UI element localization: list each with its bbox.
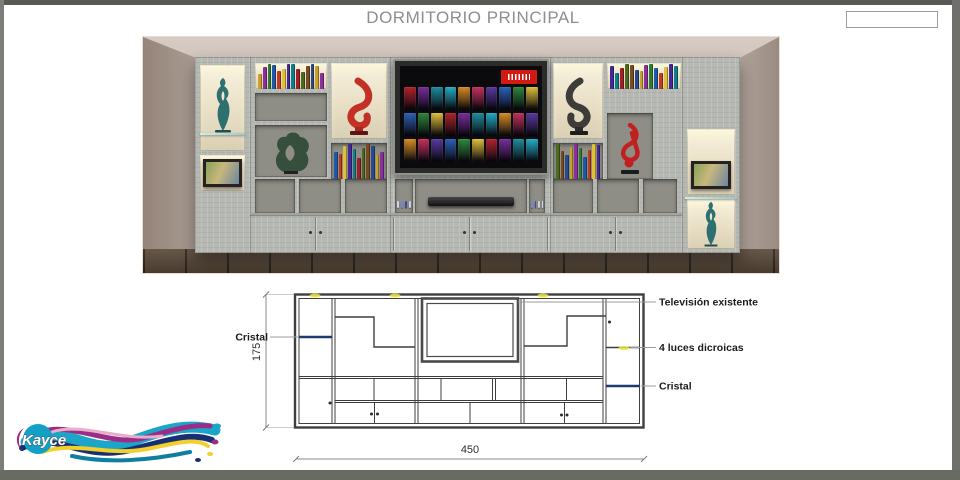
frame-left	[0, 0, 4, 480]
cubby	[597, 179, 639, 213]
glass-shelf	[200, 133, 245, 135]
room-wall-left	[143, 37, 197, 273]
lit-niche-right-bottom	[687, 199, 735, 249]
media-shelf	[415, 179, 527, 213]
door-seam	[393, 217, 394, 251]
cubby	[395, 179, 413, 213]
title-reference-box	[846, 11, 938, 28]
wall-unit	[195, 57, 740, 253]
television	[393, 59, 549, 175]
frame-bottom	[0, 470, 960, 480]
book-row	[255, 63, 327, 89]
photo-frame	[691, 161, 731, 189]
book-row	[553, 143, 603, 179]
unit-divider	[390, 57, 391, 253]
cubby	[299, 179, 341, 213]
cabinet-top-edge	[250, 213, 682, 215]
cubby	[345, 179, 387, 213]
tv-screen	[400, 66, 542, 168]
photo-niche-right	[687, 129, 735, 195]
book-row	[607, 63, 681, 89]
width-dimension-text: 450	[461, 444, 479, 456]
cubby	[529, 179, 545, 213]
label-luces: 4 luces dicroicas	[659, 342, 744, 354]
label-cristal-left: Cristal	[235, 332, 268, 344]
poster-grid	[404, 87, 538, 163]
unit-divider	[682, 57, 683, 253]
sculpture-abstract-green	[268, 129, 314, 175]
book-row	[331, 143, 387, 179]
shelf-cell	[255, 93, 327, 121]
door-seam	[615, 217, 616, 251]
sculpture-figurine-teal	[212, 77, 234, 133]
label-cristal-right: Cristal	[659, 381, 692, 393]
sculpture-swirl-dark	[562, 77, 596, 137]
page-title: DORMITORIO PRINCIPAL	[0, 8, 946, 28]
door-seam	[469, 217, 470, 251]
door-seam	[315, 217, 316, 251]
shelf-cell-green-sculpture	[255, 125, 327, 177]
door-knob	[473, 231, 476, 234]
glass-shelf	[685, 197, 737, 199]
door-knob	[319, 231, 322, 234]
frame-right	[952, 0, 960, 480]
dimension-height: 175	[251, 292, 294, 431]
door-knob	[619, 231, 622, 234]
height-dimension-text: 175	[251, 343, 263, 361]
kayce-logo: Kayce	[12, 412, 227, 472]
cubby	[255, 179, 295, 213]
shelf-cell-clef	[607, 113, 653, 179]
lit-niche-flame	[331, 63, 387, 139]
dimension-width: 450	[293, 444, 647, 462]
tv-outline	[422, 299, 518, 362]
frame-top	[0, 0, 960, 5]
render-3d	[143, 37, 779, 273]
technical-drawing: 175 450 Televisión existente 4 luces dic…	[230, 280, 770, 480]
netflix-logo-icon	[501, 70, 537, 84]
unit-divider	[250, 57, 251, 253]
door-knob	[609, 231, 612, 234]
room-wall-right	[739, 37, 779, 273]
door-knob	[463, 231, 466, 234]
lit-niche-left	[200, 65, 245, 151]
logo-brand-text: Kayce	[22, 432, 66, 449]
cubby	[643, 179, 677, 213]
remotes	[531, 201, 543, 208]
lit-niche-swirl	[553, 63, 603, 139]
photo-niche-left	[200, 155, 245, 191]
sculpture-figurine-teal	[702, 201, 720, 247]
dvd-player	[428, 197, 514, 206]
sculpture-flame-red	[342, 77, 376, 137]
unit-divider	[550, 57, 551, 253]
cubby	[553, 179, 593, 213]
label-television: Televisión existente	[659, 297, 758, 309]
sculpture-treble-clef-red	[617, 123, 643, 177]
door-seam	[547, 217, 548, 251]
photo-frame	[203, 159, 242, 187]
door-knob	[309, 231, 312, 234]
remotes	[397, 201, 411, 208]
